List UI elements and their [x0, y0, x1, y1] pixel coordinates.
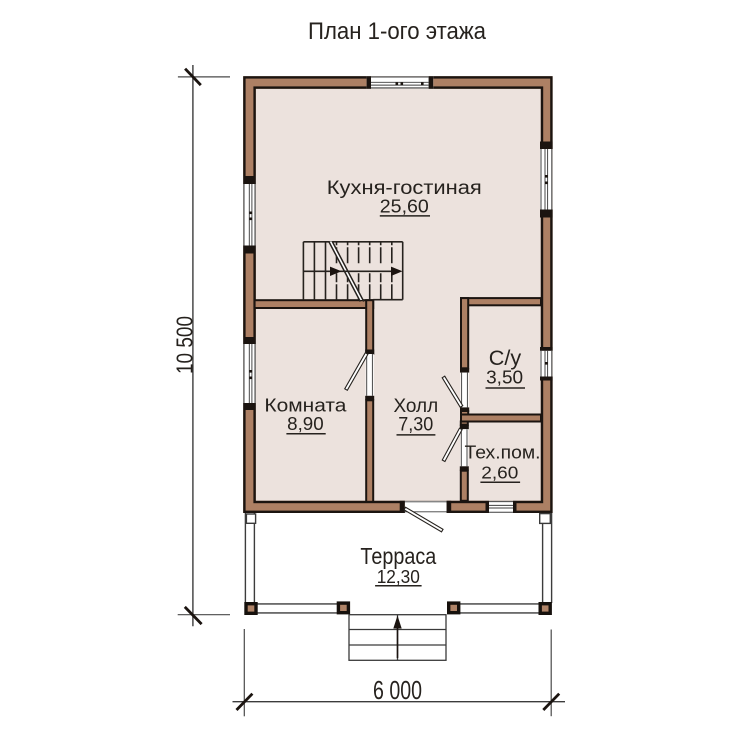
svg-text:Комната: Комната	[264, 394, 347, 415]
svg-text:3,50: 3,50	[486, 368, 523, 388]
svg-text:Терраса: Терраса	[360, 543, 437, 569]
svg-text:Тех.пом.: Тех.пом.	[465, 442, 541, 462]
svg-text:10 500: 10 500	[172, 316, 198, 374]
svg-text:План 1-ого этажа: План 1-ого этажа	[308, 18, 486, 45]
svg-text:25,60: 25,60	[380, 197, 429, 217]
svg-text:7,30: 7,30	[398, 415, 433, 436]
svg-text:2,60: 2,60	[481, 463, 518, 483]
svg-text:6 000: 6 000	[373, 675, 422, 705]
svg-text:12,30: 12,30	[377, 567, 420, 587]
svg-text:8,90: 8,90	[287, 414, 324, 434]
svg-text:С/у: С/у	[489, 347, 522, 370]
